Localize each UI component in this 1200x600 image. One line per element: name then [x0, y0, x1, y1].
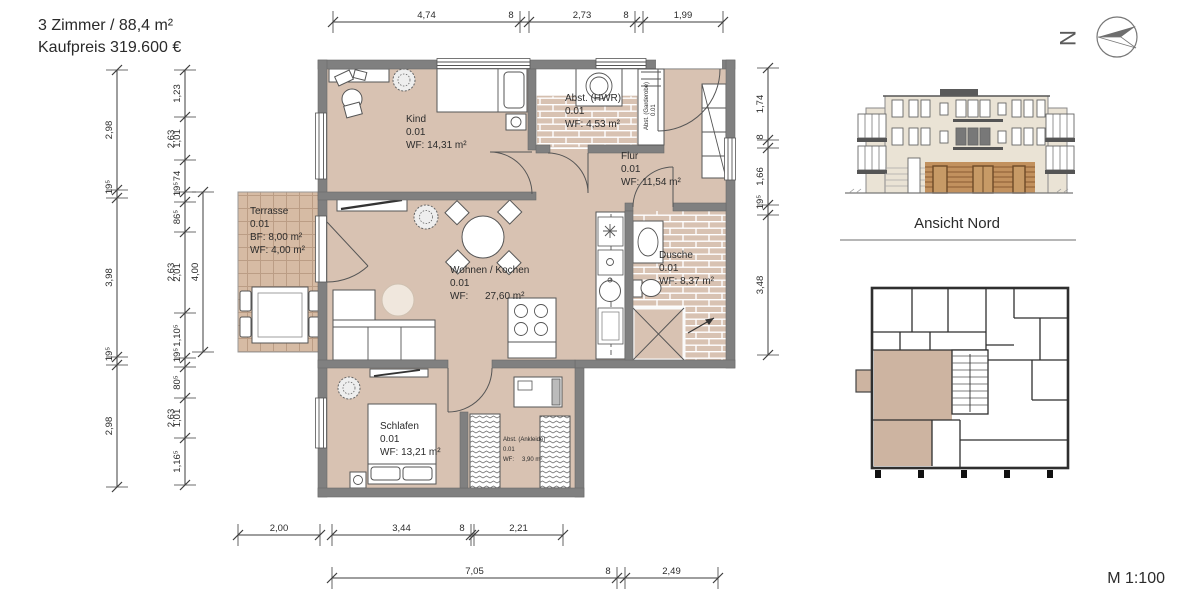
dim-label: 8: [459, 523, 464, 534]
svg-text:0.01: 0.01: [406, 127, 426, 138]
dim-label: 8: [755, 134, 766, 139]
svg-text:0.01: 0.01: [565, 106, 585, 117]
marker-dots: [875, 470, 1053, 478]
dim-label: 3,98: [104, 268, 115, 287]
svg-text:0.01: 0.01: [621, 164, 641, 175]
dim-label: 7,05: [465, 566, 484, 577]
svg-text:WF: 4,53 m²: WF: 4,53 m²: [565, 119, 621, 130]
dim-label: 4,00: [190, 263, 201, 282]
dim-label: 1,99: [674, 10, 693, 21]
north-letter: N: [1056, 30, 1081, 46]
svg-text:WF: 14,31 m²: WF: 14,31 m²: [406, 140, 467, 151]
dim-label: 86⁵: [172, 210, 183, 225]
overview-highlight: [874, 420, 932, 466]
sink: [600, 281, 621, 302]
svg-text:0.01: 0.01: [250, 219, 270, 230]
hwr-label: Abst. (HWR): [565, 93, 621, 104]
svg-text:BF: 8,00 m²: BF: 8,00 m²: [250, 232, 303, 243]
wardrobe: [540, 416, 570, 488]
ankleide-label: Abst. (Ankleide): [503, 437, 545, 443]
dim-label: 2,98: [104, 121, 115, 140]
drawing-svg: 3 Zimmer / 88,4 m² Kaufpreis 319.600 € N: [0, 0, 1200, 600]
dim-label: 19⁵: [172, 348, 183, 363]
page-title: 3 Zimmer / 88,4 m²: [38, 17, 174, 34]
dim-label: 8: [623, 10, 628, 21]
dim-label: 74: [172, 171, 183, 182]
svg-text:WF: 11,54 m²: WF: 11,54 m²: [621, 177, 681, 188]
nightstand: [350, 472, 366, 488]
dining-table: [462, 216, 504, 258]
wardrobe: [470, 414, 500, 488]
schlafen-label: Schlafen: [380, 421, 419, 432]
window-flur-right: [725, 138, 736, 180]
svg-text:0.01: 0.01: [380, 434, 400, 445]
dim-label: 2,98: [104, 417, 115, 436]
window-hwr-top: [596, 59, 646, 69]
sofa: [333, 320, 435, 360]
terrace-chair: [240, 291, 251, 311]
flur-room: [702, 84, 726, 178]
svg-text:WF: 8,37 m²: WF: 8,37 m²: [659, 276, 715, 287]
plant-icon: [393, 69, 415, 91]
dim-label: 1,66: [755, 167, 766, 186]
svg-text:Abst. (Garderobe): Abst. (Garderobe): [644, 82, 650, 130]
overview-highlight: [874, 350, 952, 420]
svg-text:WF: 4,00 m²: WF: 4,00 m²: [250, 245, 306, 256]
svg-text:WF:: WF:: [450, 291, 468, 302]
dim-label: 2,63: [166, 263, 177, 282]
dim-label: 1,10⁵: [172, 324, 183, 346]
dim-label: 19⁵: [172, 182, 183, 197]
svg-text:WF:: WF:: [503, 457, 514, 463]
dim-label: 1,23: [172, 84, 183, 103]
dim-label: 8: [605, 566, 610, 577]
plant-icon: [414, 205, 438, 229]
terrasse-label: Terrasse: [250, 206, 289, 217]
dim-label: 1,74: [755, 95, 766, 114]
pillow: [371, 467, 400, 480]
plant-icon: [338, 377, 360, 399]
overview-plan: [856, 288, 1068, 478]
rug: [382, 284, 414, 316]
pillow: [403, 467, 432, 480]
north-arrow-icon: N: [1056, 17, 1138, 57]
svg-text:27,60 m²: 27,60 m²: [485, 291, 525, 302]
elevation-drawing: Ansicht Nord: [840, 89, 1076, 240]
window-schlafen: [316, 398, 327, 448]
cooktop-icon: [603, 224, 617, 238]
price-label: Kaufpreis 319.600 €: [38, 39, 181, 56]
svg-text:0.01: 0.01: [450, 278, 470, 289]
svg-text:0.01: 0.01: [503, 447, 515, 453]
pillow: [504, 72, 524, 108]
nightstand: [506, 114, 526, 130]
terrace-door-window: [316, 216, 327, 282]
dim-label: 2,49: [662, 566, 681, 577]
dim-label: 4,74: [417, 10, 436, 21]
wohnen-label: Wohnen / Kochen: [450, 265, 529, 276]
window-kind: [316, 113, 327, 179]
elevation-title: Ansicht Nord: [914, 215, 1000, 232]
dim-label: 3,44: [392, 523, 411, 534]
dim-label: 2,63: [166, 409, 177, 428]
dusche-label: Dusche: [659, 250, 693, 261]
sofa-chaise: [333, 290, 375, 322]
scale-label: M 1:100: [1107, 570, 1165, 587]
dim-label: 19⁵: [104, 180, 115, 195]
dim-label: 3,48: [755, 276, 766, 295]
flur-label: Flur: [621, 151, 639, 162]
svg-text:0.01: 0.01: [659, 263, 679, 274]
svg-text:0.01: 0.01: [651, 104, 657, 116]
dim-label: 19⁵: [104, 347, 115, 362]
overview-stairs: [952, 350, 988, 414]
svg-text:3,90 m²: 3,90 m²: [522, 457, 542, 463]
dim-label: 1,16⁵: [172, 450, 183, 472]
kitchen-island: [508, 298, 556, 358]
entry-opening: [656, 59, 722, 69]
kind-label: Kind: [406, 114, 426, 125]
terrace-chair: [240, 317, 251, 337]
window-kind-top: [437, 59, 530, 69]
svg-text:WF: 13,21 m²: WF: 13,21 m²: [380, 447, 441, 458]
floorplan-sheet: 3 Zimmer / 88,4 m² Kaufpreis 319.600 € N: [0, 0, 1200, 600]
dim-label: 2,63: [166, 130, 177, 149]
dim-label: 2,00: [270, 523, 289, 534]
dim-label: 80⁵: [172, 375, 183, 390]
dim-label: 19⁵: [755, 195, 766, 210]
dim-label: 8: [508, 10, 513, 21]
dim-label: 2,73: [573, 10, 592, 21]
dim-label: 2,21: [509, 523, 528, 534]
